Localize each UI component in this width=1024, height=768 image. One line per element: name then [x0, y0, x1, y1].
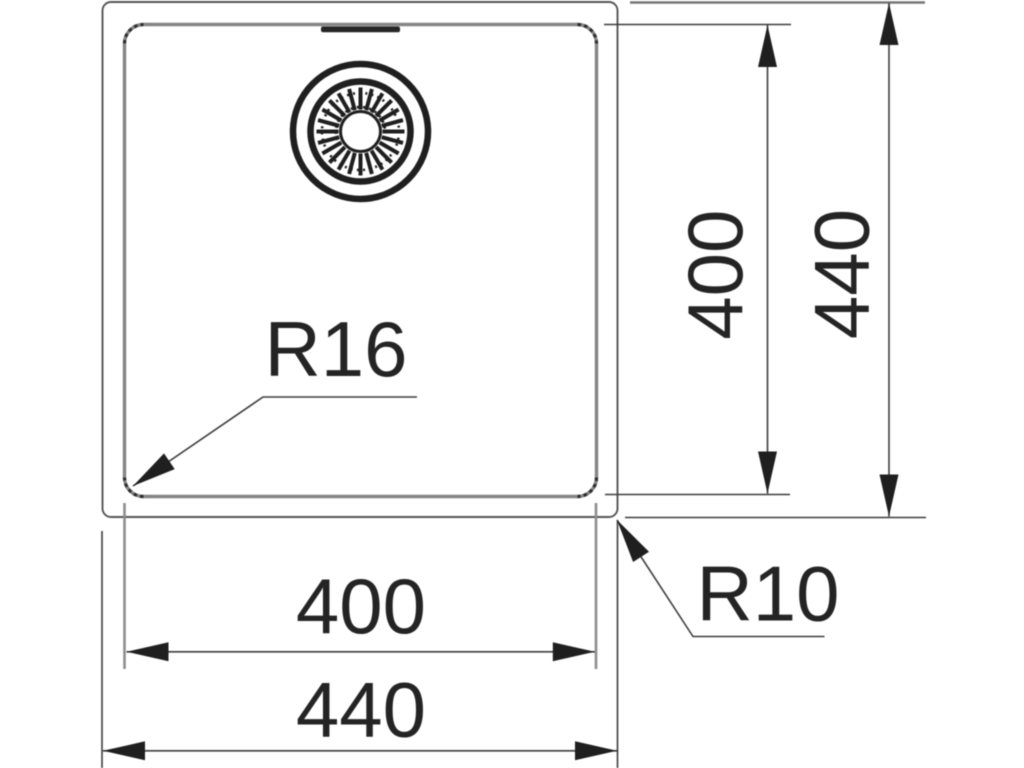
- svg-text:440: 440: [797, 209, 885, 339]
- svg-text:400: 400: [671, 210, 759, 340]
- svg-text:440: 440: [296, 665, 426, 753]
- svg-text:R16: R16: [264, 305, 407, 393]
- svg-text:400: 400: [296, 562, 426, 650]
- svg-text:R10: R10: [696, 550, 839, 638]
